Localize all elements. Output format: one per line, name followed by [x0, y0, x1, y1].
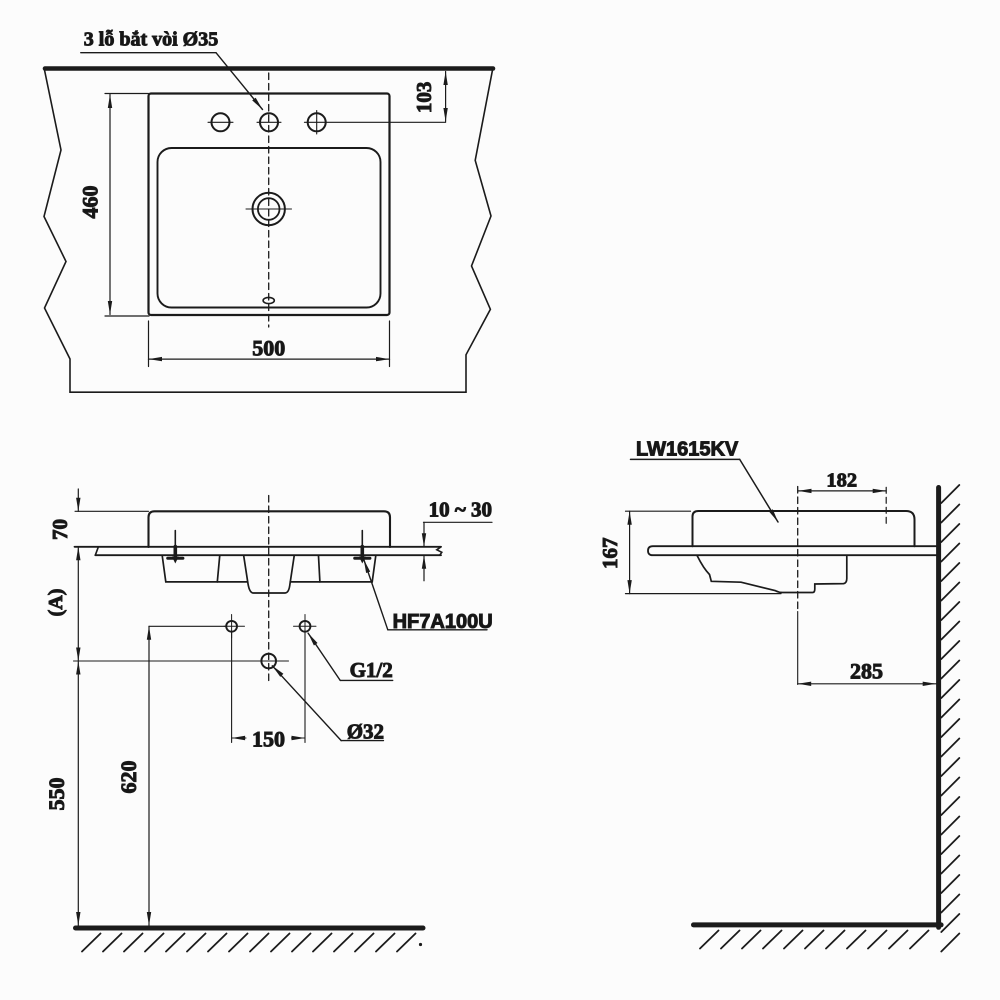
svg-text:Ø32: Ø32 [347, 719, 384, 743]
svg-text:460: 460 [78, 186, 103, 219]
svg-text:3 lỗ bắt vòi Ø35: 3 lỗ bắt vòi Ø35 [84, 29, 218, 51]
svg-text:285: 285 [850, 659, 883, 684]
svg-text:150: 150 [252, 727, 285, 752]
svg-text:500: 500 [252, 336, 285, 361]
svg-text:620: 620 [116, 761, 141, 794]
svg-text:LW1615KV: LW1615KV [636, 439, 739, 461]
svg-text:167: 167 [598, 538, 622, 570]
svg-text:70: 70 [48, 519, 72, 540]
svg-text:182: 182 [826, 470, 857, 492]
svg-text:10 ~ 30: 10 ~ 30 [429, 498, 492, 522]
svg-text:(A): (A) [45, 589, 67, 617]
svg-text:550: 550 [44, 778, 69, 811]
svg-text:103: 103 [412, 82, 436, 114]
svg-text:HF7A100U: HF7A100U [393, 611, 493, 633]
svg-text:G1/2: G1/2 [350, 658, 393, 682]
